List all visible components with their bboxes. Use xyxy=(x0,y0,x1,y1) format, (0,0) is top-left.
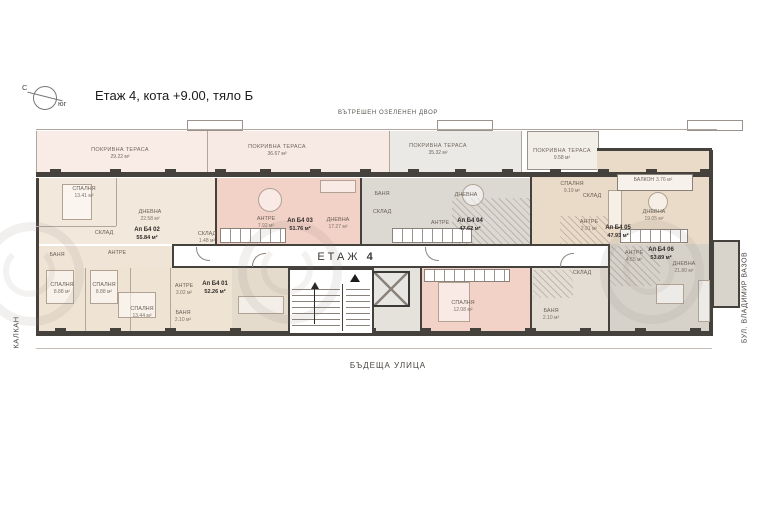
apartment-label-b405: Ап Б4 05 47.93 м² xyxy=(605,225,631,240)
apartment-area: 47.62 м² xyxy=(459,226,480,233)
terrace-name: ПОКРИВНА ТЕРАСА xyxy=(248,144,306,151)
terrace-label: ПОКРИВНА ТЕРАСА 35.32 м² xyxy=(409,143,467,157)
compass-north: С xyxy=(22,83,27,92)
room-name: СПАЛНЯ xyxy=(50,282,73,289)
top-boundary-line xyxy=(36,129,717,130)
room-name: СКЛАД xyxy=(95,230,113,237)
apartment-area: 53.89 м² xyxy=(650,255,671,262)
room-label: АНТРЕ 3.02 м² xyxy=(175,283,193,296)
balcony-east xyxy=(712,240,740,308)
wall-right-wing-top xyxy=(597,148,712,151)
partition xyxy=(85,268,86,331)
room-name: СПАЛНЯ xyxy=(72,186,95,193)
floor-number: 4 xyxy=(367,251,373,263)
terrace-divider xyxy=(389,131,390,174)
apartment-id: Ап Б4 03 xyxy=(287,218,313,226)
room-label: СКЛАД xyxy=(573,270,591,277)
apartment-id: Ап Б4 05 xyxy=(605,225,631,233)
wall-corridor-north xyxy=(172,244,608,246)
terrace-name: ПОКРИВНА ТЕРАСА xyxy=(91,147,149,154)
apartment-id: Ап Б4 01 xyxy=(202,281,228,289)
room-label: ДНЕВНА 22.58 м² xyxy=(139,209,162,222)
room-label: БАНЯ xyxy=(49,252,64,259)
wall-divider xyxy=(530,268,532,331)
terrace-label: ПОКРИВНА ТЕРАСА 9.58 м² xyxy=(533,148,591,162)
room-name: СПАЛНЯ xyxy=(560,181,583,188)
room-name: ДНЕВНА xyxy=(139,209,162,216)
room-label: АНТРЕ xyxy=(431,220,449,227)
room-area: 21.80 м² xyxy=(674,268,693,274)
room-label: БАЛКОН 3.76 м² xyxy=(634,177,673,183)
apartment-area: 52.26 м² xyxy=(204,289,225,296)
hatch-b406-bath xyxy=(533,270,573,298)
room-area: 2.91 м² xyxy=(581,226,597,232)
apartment-id: Ап Б4 06 xyxy=(648,247,674,255)
room-label: ДНЕВНА 21.80 м² xyxy=(673,261,696,274)
terrace-divider xyxy=(521,131,522,174)
room-name: СКЛАД xyxy=(373,209,391,216)
room-name: СКЛАД xyxy=(198,231,216,238)
street-label-bottom: БЪДЕЩА УЛИЦА xyxy=(350,361,426,370)
elevator xyxy=(372,271,410,307)
street-label-right: БУЛ. ВЛАДИМИР ВАЗОВ xyxy=(742,233,749,363)
terrace-left-edge xyxy=(36,131,37,173)
room-label: ДНЕВНА xyxy=(455,192,478,199)
room-area: 3.76 м² xyxy=(656,177,672,183)
room-name: ДНЕВНА xyxy=(643,209,666,216)
room-label: СКЛАД xyxy=(95,230,113,237)
furniture-table xyxy=(258,188,282,212)
furniture-sofa xyxy=(608,190,622,228)
room-label: БАНЯ 2.10 м² xyxy=(175,310,191,323)
room-area: 22.58 м² xyxy=(140,216,159,222)
room-area: 19.05 м² xyxy=(644,216,663,222)
floor-word: ЕТАЖ xyxy=(317,251,360,263)
room-area: 2.10 м² xyxy=(175,317,191,323)
room-name: БАНЯ xyxy=(543,308,558,315)
room-name: АНТРЕ xyxy=(257,216,275,223)
room-area: 12.08 м² xyxy=(453,307,472,313)
wall-divider xyxy=(530,174,532,244)
partition xyxy=(170,268,171,331)
courtyard-label: ВЪТРЕШЕН ОЗЕЛЕНЕН ДВОР xyxy=(338,110,438,116)
room-name: БАНЯ xyxy=(374,191,389,198)
terrace-area: 35.32 м² xyxy=(428,150,447,157)
apartment-area: 51.76 м² xyxy=(289,226,310,233)
room-name: БАНЯ xyxy=(49,252,64,259)
room-label: СПАЛНЯ 8.88 м² xyxy=(50,282,73,295)
room-label: БАНЯ 2.10 м² xyxy=(543,308,559,321)
room-name: АНТРЕ xyxy=(625,250,643,257)
page-title: Етаж 4, кота +9.00, тяло Б xyxy=(95,88,253,103)
terrace-area: 29.22 м² xyxy=(110,154,129,161)
room-label: СКЛАД xyxy=(583,193,601,200)
room-label: СПАЛНЯ 9.19 м² xyxy=(560,181,583,194)
room-name: АНТРЕ xyxy=(580,219,598,226)
wall-bottom-outer xyxy=(36,331,712,336)
room-name: АНТРЕ xyxy=(108,250,126,257)
furniture-sofa xyxy=(320,180,356,193)
room-area: 3.02 м² xyxy=(176,290,192,296)
room-name: ДНЕВНА xyxy=(455,192,478,199)
corridor-label: ЕТАЖ 4 xyxy=(317,251,372,263)
room-label: СКЛАД 1.48 м² xyxy=(198,231,216,244)
terrace-name: ПОКРИВНА ТЕРАСА xyxy=(409,143,467,150)
columns-top xyxy=(50,169,61,177)
partition xyxy=(116,178,117,226)
corridor-area xyxy=(172,246,608,266)
watermark-logo xyxy=(238,220,342,324)
room-label: СПАЛНЯ 13.44 м² xyxy=(130,306,153,319)
room-name: БАНЯ xyxy=(175,310,190,317)
columns-bottom xyxy=(55,328,66,336)
room-name: АНТРЕ xyxy=(431,220,449,227)
room-label: АНТРЕ 7.92 м² xyxy=(257,216,275,229)
terrace-area: 36.67 м² xyxy=(267,151,286,158)
room-area: 8.88 м² xyxy=(54,289,70,295)
room-name: СКЛАД xyxy=(583,193,601,200)
terrace-divider xyxy=(207,131,208,174)
stair-divider xyxy=(342,284,343,331)
apartment-label-b401: Ап Б4 01 52.26 м² xyxy=(202,281,228,296)
room-name: СПАЛНЯ xyxy=(451,300,474,307)
apartment-label-b402: Ап Б4 02 55.84 м² xyxy=(134,227,160,242)
apartment-id: Ап Б4 04 xyxy=(457,218,483,226)
kitchen-counter-b406 xyxy=(424,269,510,282)
room-label: ДНЕВНА 17.27 м² xyxy=(327,217,350,230)
apartment-label-b403: Ап Б4 03 51.76 м² xyxy=(287,218,313,233)
terrace-label: ПОКРИВНА ТЕРАСА 29.22 м² xyxy=(91,147,149,161)
room-area: 9.19 м² xyxy=(564,188,580,194)
floor-plan: С юг Етаж 4, кота +9.00, тяло Б ВЪТРЕШЕН… xyxy=(0,0,764,510)
room-label: БАНЯ xyxy=(374,191,389,198)
room-label: СПАЛНЯ 13.41 м² xyxy=(72,186,95,199)
apartment-area: 47.93 м² xyxy=(607,233,628,240)
room-name: СПАЛНЯ xyxy=(130,306,153,313)
stair-up-marker-icon xyxy=(350,274,360,282)
stair-flight xyxy=(346,284,370,331)
wall-divider xyxy=(360,178,362,244)
room-label: АНТРЕ 2.91 м² xyxy=(580,219,598,232)
room-name: БАЛКОН xyxy=(634,177,654,183)
apartment-id: Ап Б4 02 xyxy=(134,227,160,235)
terrace-name: ПОКРИВНА ТЕРАСА xyxy=(533,148,591,155)
terrace-label: ПОКРИВНА ТЕРАСА 36.67 м² xyxy=(248,144,306,158)
compass-south: юг xyxy=(58,99,66,108)
room-area: 2.10 м² xyxy=(543,315,559,321)
apartment-label-b404: Ап Б4 04 47.62 м² xyxy=(457,218,483,233)
wall-divider xyxy=(420,268,422,331)
street-label-left: КАЛКАН xyxy=(12,298,21,368)
room-name: СКЛАД xyxy=(573,270,591,277)
room-label: АНТРЕ 4.55 м² xyxy=(625,250,643,263)
room-area: 8.88 м² xyxy=(96,289,112,295)
room-area: 4.55 м² xyxy=(626,257,642,263)
room-name: ДНЕВНА xyxy=(327,217,350,224)
room-name: ДНЕВНА xyxy=(673,261,696,268)
room-label: СПАЛНЯ 12.08 м² xyxy=(451,300,474,313)
room-name: СПАЛНЯ xyxy=(92,282,115,289)
room-name: АНТРЕ xyxy=(175,283,193,290)
room-label: ДНЕВНА 19.05 м² xyxy=(643,209,666,222)
room-area: 1.48 м² xyxy=(199,238,215,244)
apartment-area: 55.84 м² xyxy=(136,235,157,242)
room-area: 7.92 м² xyxy=(258,223,274,229)
room-label: СКЛАД xyxy=(373,209,391,216)
room-area: 13.41 м² xyxy=(74,193,93,199)
dimension-line xyxy=(36,348,712,349)
apartment-label-b406: Ап Б4 06 53.89 м² xyxy=(648,247,674,262)
room-label: АНТРЕ xyxy=(108,250,126,257)
wall-corridor-end xyxy=(172,244,174,268)
terrace-area: 9.58 м² xyxy=(554,155,570,162)
room-label: СПАЛНЯ 8.88 м² xyxy=(92,282,115,295)
room-area: 13.44 м² xyxy=(132,313,151,319)
room-area: 17.27 м² xyxy=(328,224,347,230)
wall-terrace-south xyxy=(36,172,712,177)
